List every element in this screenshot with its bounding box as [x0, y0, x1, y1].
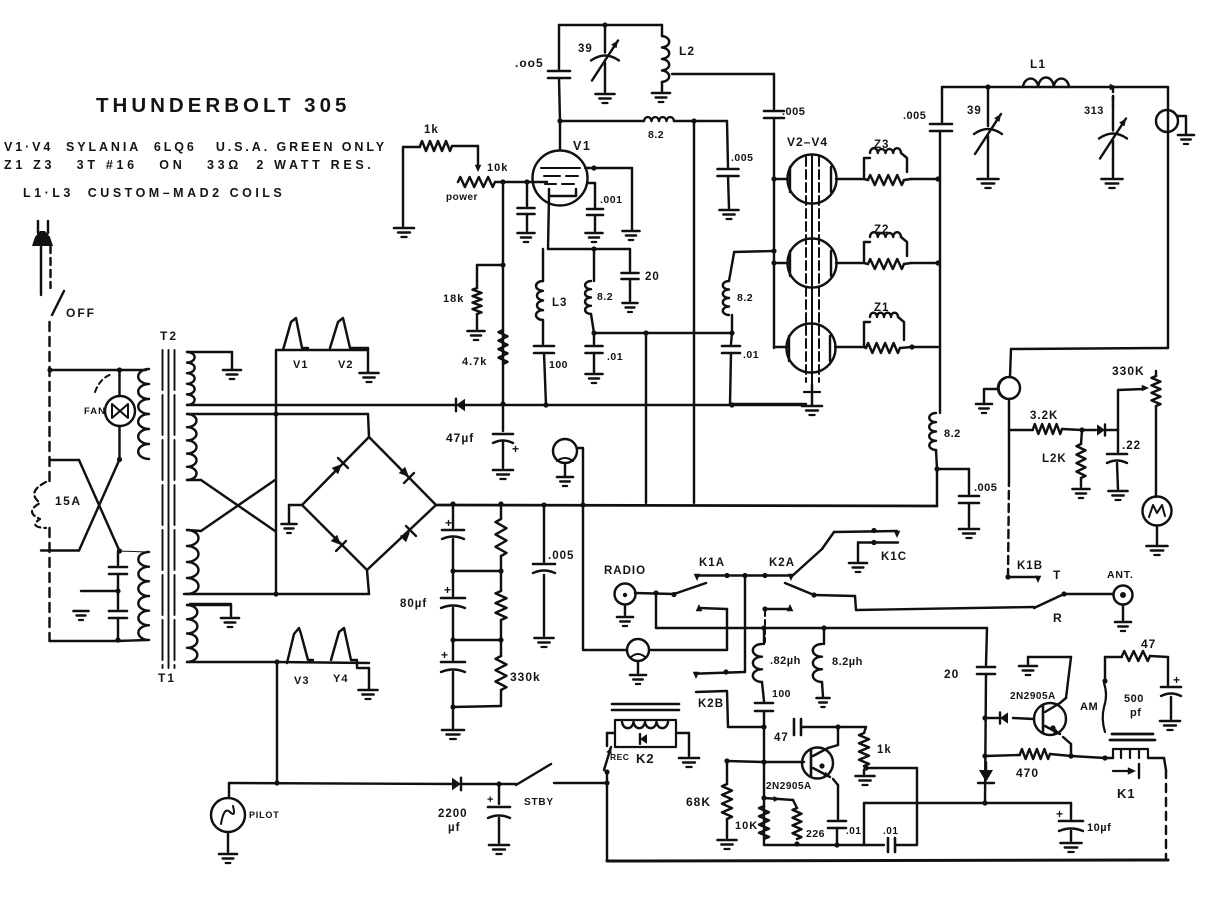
- svg-text:K2: K2: [636, 751, 655, 766]
- svg-text:.005: .005: [548, 550, 574, 562]
- svg-text:V1: V1: [293, 359, 308, 371]
- svg-text:8.2: 8.2: [944, 428, 961, 440]
- svg-text:.005: .005: [731, 152, 753, 164]
- svg-text:39: 39: [578, 43, 593, 55]
- svg-text:.01: .01: [743, 349, 759, 361]
- svg-text:K2B: K2B: [698, 698, 724, 710]
- svg-text:OFF: OFF: [66, 306, 96, 320]
- svg-text:10K: 10K: [735, 820, 758, 832]
- svg-text:K1B: K1B: [1017, 560, 1043, 572]
- svg-text:2N2905A: 2N2905A: [766, 781, 812, 792]
- svg-text:L3: L3: [552, 297, 567, 309]
- svg-text:20: 20: [645, 271, 660, 283]
- svg-text:+: +: [445, 516, 452, 530]
- svg-text:+: +: [1056, 807, 1063, 821]
- svg-text:V2: V2: [338, 359, 353, 371]
- svg-text:K1: K1: [1117, 786, 1136, 801]
- svg-text:2N2905A: 2N2905A: [1010, 691, 1056, 702]
- svg-text:K1C: K1C: [881, 551, 907, 563]
- svg-text:ANT.: ANT.: [1107, 569, 1134, 581]
- svg-text:T: T: [1053, 568, 1061, 582]
- svg-text:.01: .01: [846, 826, 861, 837]
- svg-text:10k: 10k: [487, 162, 508, 174]
- svg-text:.01: .01: [883, 826, 898, 837]
- svg-text:.005: .005: [782, 106, 805, 118]
- svg-text:V1: V1: [573, 139, 591, 153]
- svg-text:68K: 68K: [686, 795, 711, 809]
- svg-text:THUNDERBOLT 305: THUNDERBOLT 305: [96, 94, 350, 117]
- svg-text:47: 47: [774, 732, 789, 744]
- svg-text:Z1 Z3 3T #16 ON 33Ω 2 W: Z1 Z3 3T #16 ON 33Ω 2 WATT RES.: [4, 158, 375, 172]
- svg-text:39: 39: [967, 105, 982, 117]
- svg-text:V1·V4 SYLANIA 6LQ6 U.S.A.: V1·V4 SYLANIA 6LQ6 U.S.A. GREEN ONLY: [4, 140, 387, 154]
- svg-text:226: 226: [806, 828, 825, 840]
- svg-text:2200: 2200: [438, 808, 468, 820]
- svg-text:100: 100: [772, 688, 791, 700]
- svg-text:3.2K: 3.2K: [1030, 410, 1058, 422]
- svg-text:Y4: Y4: [333, 673, 348, 685]
- svg-text:1k: 1k: [877, 744, 892, 756]
- svg-text:.82µh: .82µh: [770, 655, 801, 667]
- svg-text:L2K: L2K: [1042, 453, 1067, 465]
- svg-text:REC: REC: [610, 752, 629, 762]
- svg-text:+: +: [1173, 673, 1180, 687]
- svg-text:1k: 1k: [424, 124, 439, 136]
- svg-text:500: 500: [1124, 693, 1144, 705]
- svg-text:+: +: [444, 583, 451, 597]
- svg-text:.22: .22: [1122, 440, 1141, 452]
- svg-text:8.2µh: 8.2µh: [832, 656, 863, 668]
- svg-text:L2: L2: [679, 44, 695, 58]
- svg-text:.oo5: .oo5: [515, 56, 544, 70]
- svg-text:.005: .005: [903, 110, 926, 122]
- svg-text:.005: .005: [974, 482, 997, 494]
- svg-text:330k: 330k: [510, 670, 541, 684]
- svg-text:PILOT: PILOT: [249, 810, 280, 820]
- svg-text:L1: L1: [1030, 57, 1046, 71]
- svg-text:47: 47: [1141, 637, 1156, 651]
- svg-text:20: 20: [944, 667, 959, 681]
- svg-text:.01: .01: [607, 351, 623, 363]
- svg-text:313: 313: [1084, 105, 1104, 117]
- svg-text:+: +: [441, 648, 448, 662]
- svg-text:80µf: 80µf: [400, 598, 427, 610]
- svg-text:+: +: [487, 794, 493, 806]
- svg-text:330K: 330K: [1112, 364, 1145, 378]
- svg-text:100: 100: [549, 359, 568, 371]
- svg-text:10µf: 10µf: [1087, 822, 1111, 834]
- svg-text:15A: 15A: [55, 494, 82, 508]
- svg-text:AM: AM: [1080, 701, 1098, 713]
- svg-text:4.7k: 4.7k: [462, 356, 487, 368]
- svg-text:+: +: [512, 442, 519, 456]
- svg-text:pf: pf: [1130, 707, 1141, 719]
- svg-text:L1·L3 CUSTOM–MAD2 COILS: L1·L3 CUSTOM–MAD2 COILS: [23, 186, 285, 200]
- svg-text:T2: T2: [160, 329, 178, 343]
- svg-text:V2–V4: V2–V4: [787, 135, 828, 149]
- svg-text:µf: µf: [448, 822, 460, 834]
- svg-text:470: 470: [1016, 766, 1039, 780]
- svg-text:FAN: FAN: [84, 406, 106, 417]
- svg-text:STBY: STBY: [524, 797, 554, 808]
- svg-text:18k: 18k: [443, 293, 464, 305]
- svg-text:power: power: [446, 192, 478, 203]
- svg-text:8.2: 8.2: [597, 291, 613, 303]
- svg-text:K2A: K2A: [769, 557, 795, 569]
- svg-text:K1A: K1A: [699, 557, 725, 569]
- svg-text:V3: V3: [294, 675, 309, 687]
- svg-text:RADIO: RADIO: [604, 565, 646, 577]
- svg-text:47µf: 47µf: [446, 431, 474, 445]
- svg-text:T1: T1: [158, 671, 176, 685]
- svg-text:8.2: 8.2: [648, 129, 664, 141]
- svg-text:.001: .001: [600, 194, 622, 206]
- svg-text:R: R: [1053, 611, 1063, 625]
- svg-text:8.2: 8.2: [737, 292, 753, 304]
